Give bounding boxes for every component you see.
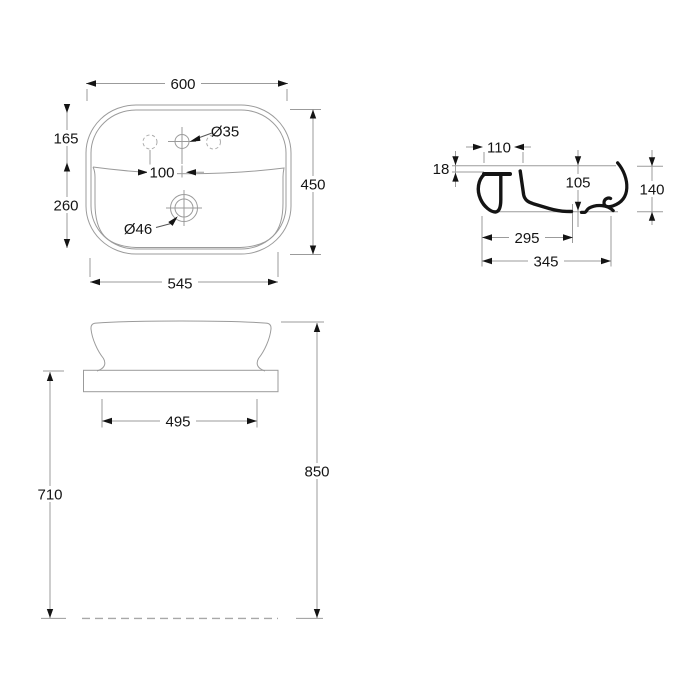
basin-front-profile: [91, 321, 271, 371]
dim-front-depth: 260: [53, 198, 78, 215]
technical-drawing-canvas: 600 165 260 545 450 100 Ø35 Ø46 110 18 1…: [0, 0, 700, 700]
label-backgrounds: [36, 75, 666, 502]
section-front-wall: [478, 174, 501, 212]
dim-overall-width: 600: [170, 76, 195, 93]
dim-section-overall-depth: 345: [533, 254, 558, 271]
dimension-labels: 600 165 260 545 450 100 Ø35 Ø46 110 18 1…: [37, 76, 664, 504]
tap-hole-crosshair: [168, 127, 196, 164]
basin-outer-outline: [86, 105, 291, 254]
dim-rear-ledge-width: 110: [487, 140, 511, 157]
dim-counter-height: 710: [37, 487, 62, 504]
dim-base-width: 495: [165, 414, 190, 431]
dim-bottom-width: 545: [167, 276, 192, 293]
section-rear-wall: [604, 163, 627, 207]
dim-tap-hole-diameter: Ø35: [211, 124, 239, 141]
dim-tap-hole-spacing: 100: [149, 165, 174, 182]
dim-drain-distance: 295: [514, 230, 539, 247]
dim-overall-depth: 450: [300, 177, 325, 194]
counter-top: [84, 370, 279, 391]
front-view: [41, 321, 324, 618]
dim-overall-height: 850: [304, 464, 329, 481]
dim-rim-thickness: 18: [433, 161, 450, 178]
bowl-opening-outline: [93, 167, 284, 248]
dimension-arrowheads: [47, 80, 655, 618]
basin-inner-rim: [91, 110, 286, 249]
section-bowl-slope: [520, 171, 571, 212]
optional-tap-hole-left: [143, 135, 157, 149]
dim-basin-height: 140: [639, 182, 664, 199]
front-dim-lines: [41, 322, 324, 618]
drain-leader: [156, 224, 171, 228]
dim-rear-depth: 165: [53, 131, 78, 148]
section-view: [452, 147, 663, 267]
plan-view: [86, 105, 291, 254]
drawing-sheet: 600 165 260 545 450 100 Ø35 Ø46 110 18 1…: [0, 0, 700, 700]
dim-bowl-depth: 105: [565, 175, 590, 192]
dim-drain-hole-diameter: Ø46: [124, 221, 152, 238]
